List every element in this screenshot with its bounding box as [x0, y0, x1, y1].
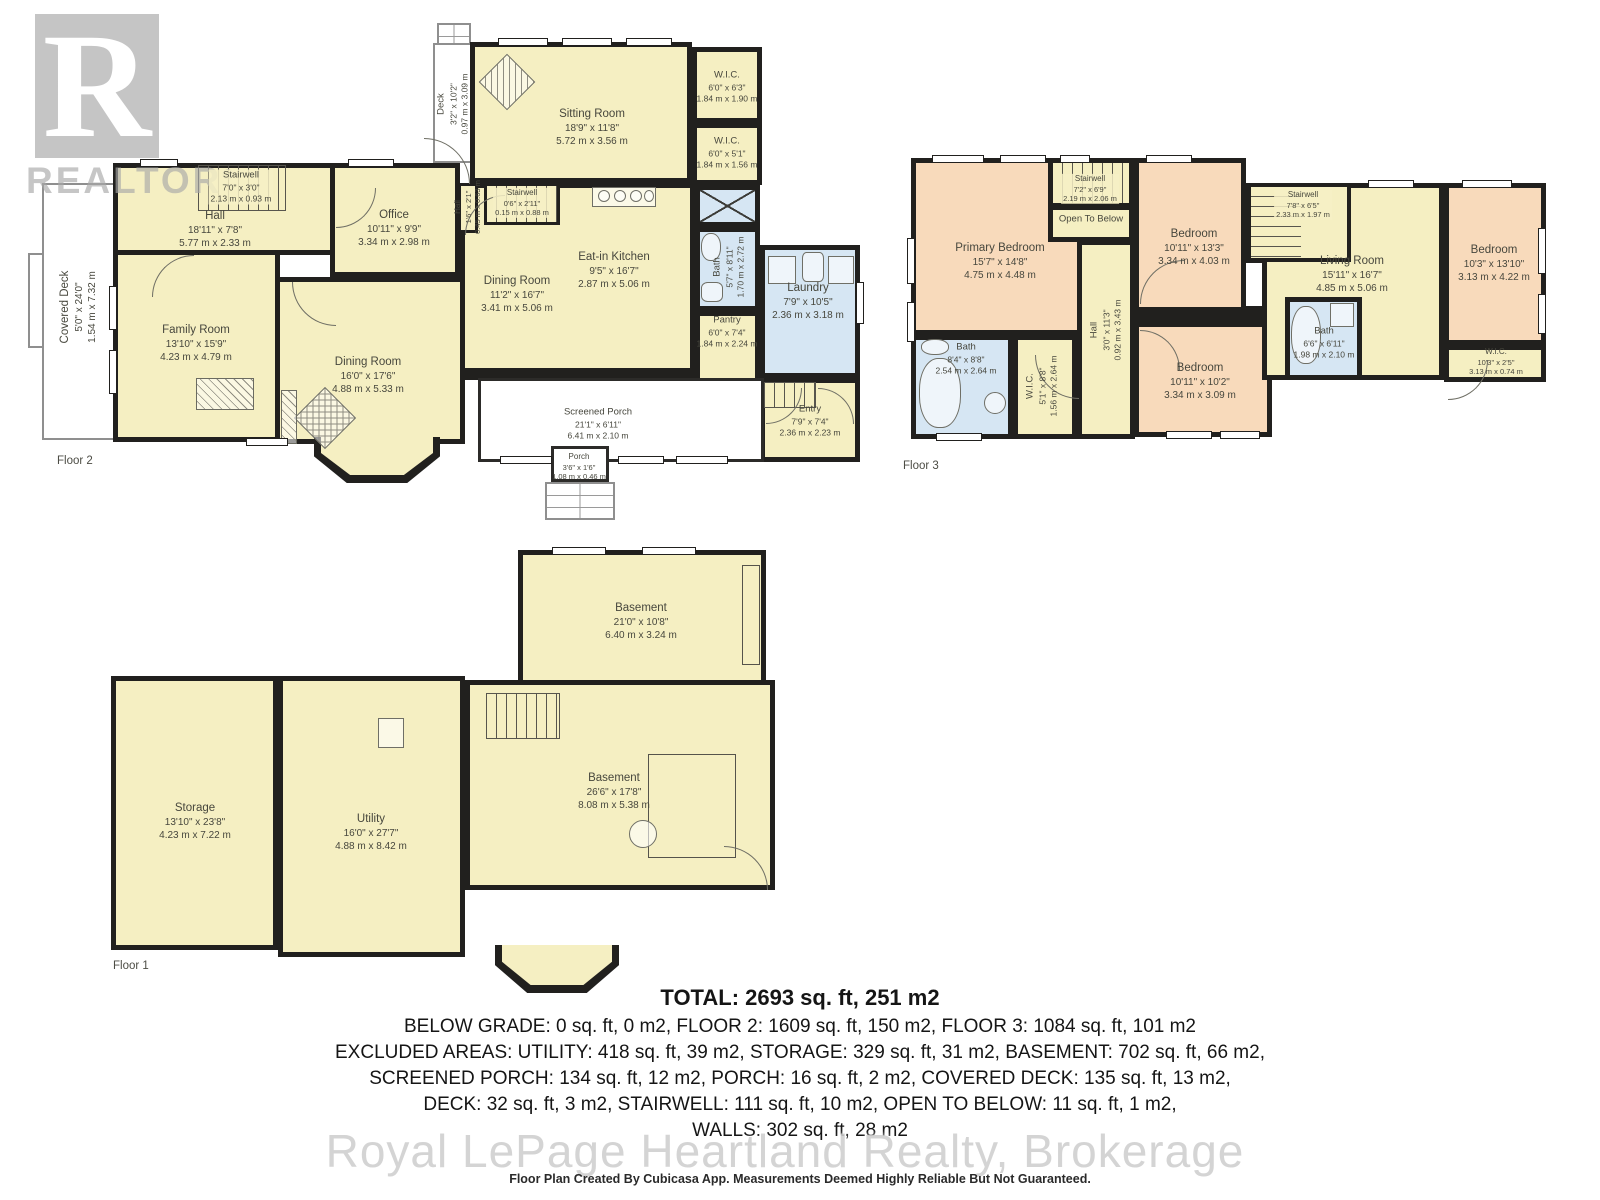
window — [1538, 294, 1546, 334]
window — [1146, 155, 1192, 163]
label-bath-f2: Bath 5'7" x 8'11" 1.70 m x 2.72 m — [712, 237, 747, 298]
sink-icon — [984, 392, 1006, 414]
total-area-text: TOTAL: 2693 sq. ft, 251 m2 — [0, 985, 1600, 1011]
window — [1000, 155, 1046, 163]
window — [626, 38, 672, 46]
window — [109, 286, 117, 330]
label-bedroom-f3-top: Bedroom 10'11" x 13'3" 3.34 m x 4.03 m — [1158, 227, 1230, 269]
window — [1538, 228, 1546, 274]
fireplace-icon — [196, 378, 254, 410]
label-basement-main: Basement 26'6" x 17'8" 8.08 m x 5.38 m — [578, 771, 650, 813]
porch-steps — [545, 482, 615, 520]
label-sitting-room: Sitting Room 18'9" x 11'8" 5.72 m x 3.56… — [556, 107, 628, 149]
washer-icon — [768, 256, 796, 284]
window — [618, 456, 664, 464]
summary-line: DECK: 32 sq. ft, 3 m2, STAIRWELL: 111 sq… — [0, 1092, 1600, 1118]
label-storage: Storage 13'10" x 23'8" 4.23 m x 7.22 m — [159, 801, 231, 843]
shower-icon — [700, 190, 755, 222]
floor-1-tag: Floor 1 — [113, 960, 149, 972]
laundry-sink-icon — [802, 252, 824, 282]
label-stairwell-f2: Stairwell 7'0" x 3'0" 2.13 m x 0.93 m — [209, 170, 274, 205]
label-bedroom-f3-bottom: Bedroom 10'11" x 10'2" 3.34 m x 3.09 m — [1164, 361, 1236, 403]
label-family-room: Family Room 13'10" x 15'9" 4.23 m x 4.79… — [160, 323, 232, 365]
stove-burner-icon — [598, 190, 610, 202]
label-deck: Deck 3'2" x 10'2" 0.97 m x 3.09 m — [436, 74, 471, 135]
area-summary: TOTAL: 2693 sq. ft, 251 m2 BELOW GRADE: … — [0, 985, 1600, 1144]
window — [932, 155, 984, 163]
brokerage-watermark: Royal LePage Heartland Realty, Brokerage — [0, 1124, 1570, 1178]
window — [348, 159, 394, 167]
window — [562, 38, 612, 46]
label-hall-f3: Hall 3'0" x 11'3" 0.92 m x 3.43 m — [1089, 300, 1124, 361]
basement-stairs — [486, 693, 560, 739]
label-hall-f2: Hall 18'11" x 7'8" 5.77 m x 2.33 m — [179, 209, 251, 251]
label-entry: Entry 7'9" x 7'4" 2.36 m x 2.23 m — [780, 404, 841, 439]
stove-burner-icon — [644, 190, 654, 202]
label-wic-f3-right: W.I.C. 10'3" x 2'5" 3.13 m x 0.74 m — [1469, 347, 1523, 377]
basement-partition — [742, 565, 760, 665]
deck-steps — [437, 23, 471, 45]
floor-2-tag: Floor 2 — [57, 455, 93, 467]
window — [1166, 431, 1212, 439]
window — [676, 456, 728, 464]
window — [109, 350, 117, 394]
floor-3-tag: Floor 3 — [903, 460, 939, 472]
window — [1060, 155, 1090, 163]
label-wic-1: W.I.C. 6'0" x 6'3" 1.84 m x 1.90 m — [697, 70, 758, 105]
window — [1220, 431, 1260, 439]
dryer-icon — [828, 256, 854, 284]
label-wic-f3-left: W.I.C. 5'1" x 8'8" 1.56 m x 2.64 m — [1025, 356, 1060, 417]
furnace-icon — [629, 820, 657, 848]
realtor-logo-letter: R — [43, 14, 151, 158]
disclaimer-text: Floor Plan Created By Cubicasa App. Meas… — [0, 1172, 1600, 1186]
window — [907, 302, 915, 342]
window — [246, 438, 288, 446]
summary-line: EXCLUDED AREAS: UTILITY: 418 sq. ft, 39 … — [0, 1040, 1600, 1066]
realtor-wordmark: REALTOR® — [26, 160, 236, 202]
basement-partition — [648, 754, 736, 858]
label-laundry: Laundry 7'9" x 10'5" 2.36 m x 3.18 m — [772, 281, 844, 323]
realtor-logo: R — [35, 14, 159, 158]
window — [856, 282, 864, 324]
summary-line: SCREENED PORCH: 134 sq. ft, 12 m2, PORCH… — [0, 1066, 1600, 1092]
label-stairwell-small: Stairwell 0'6" x 2'11" 0.15 m x 0.88 m — [493, 188, 551, 218]
window — [936, 433, 982, 441]
label-porch: Porch 3'6" x 1'6" 1.08 m x 0.46 m — [552, 452, 606, 482]
label-stairwell-f3-right: Stairwell 7'8" x 6'5" 2.33 m x 1.97 m — [1274, 190, 1332, 220]
summary-line: BELOW GRADE: 0 sq. ft, 0 m2, FLOOR 2: 16… — [0, 1014, 1600, 1040]
label-screened-porch: Screened Porch 21'1" x 6'11" 6.41 m x 2.… — [564, 407, 632, 442]
label-utility: Utility 16'0" x 27'7" 4.88 m x 8.42 m — [335, 812, 407, 854]
label-wic-2: W.I.C. 6'0" x 5'1" 1.84 m x 1.56 m — [697, 136, 758, 171]
label-dining-room-big: Dining Room 16'0" x 17'6" 4.88 m x 5.33 … — [332, 355, 404, 397]
label-stairwell-f3-top: Stairwell 7'2" x 6'9" 2.19 m x 2.06 m — [1061, 174, 1119, 204]
window — [642, 547, 696, 555]
label-office: Office 10'11" x 9'9" 3.34 m x 2.98 m — [358, 208, 430, 250]
label-eat-in-kitchen: Eat-in Kitchen 9'5" x 16'7" 2.87 m x 5.0… — [578, 250, 650, 292]
window — [1368, 180, 1414, 188]
label-primary-bedroom: Primary Bedroom 15'7" x 14'8" 4.75 m x 4… — [955, 241, 1044, 283]
window — [552, 547, 606, 555]
label-open-to-below: Open To Below — [1059, 214, 1123, 227]
stove-burner-icon — [630, 190, 642, 202]
sink-icon — [1330, 303, 1354, 327]
label-bath-f3-right: Bath 6'6" x 6'11" 1.98 m x 2.10 m — [1294, 326, 1355, 361]
covered-deck-step — [28, 253, 44, 348]
window — [498, 38, 548, 46]
stove-burner-icon — [614, 190, 626, 202]
window — [907, 238, 915, 284]
label-bedroom-f3-right: Bedroom 10'3" x 13'10" 3.13 m x 4.22 m — [1458, 243, 1530, 285]
label-hall-small: Hall 1'6" x 2'1" 0.45 m x 0.63 m — [453, 180, 483, 234]
label-covered-deck: Covered Deck 5'0" x 24'0" 1.54 m x 7.32 … — [58, 271, 100, 344]
label-basement-top: Basement 21'0" x 10'8" 6.40 m x 3.24 m — [605, 601, 677, 643]
label-dining-room-small: Dining Room 11'2" x 16'7" 3.41 m x 5.06 … — [481, 274, 553, 316]
utility-post-icon — [378, 718, 404, 748]
window — [1462, 180, 1512, 188]
label-living-room: Living Room 15'11" x 16'7" 4.85 m x 5.06… — [1316, 254, 1388, 296]
label-bath-f3-left: Bath 8'4" x 8'8" 2.54 m x 2.64 m — [936, 342, 997, 377]
floor-plan-page: R REALTOR® — [0, 0, 1600, 1200]
decor-hatch-strip — [281, 390, 297, 444]
label-pantry: Pantry 6'0" x 7'4" 1.84 m x 2.24 m — [697, 315, 758, 350]
window — [500, 456, 552, 464]
